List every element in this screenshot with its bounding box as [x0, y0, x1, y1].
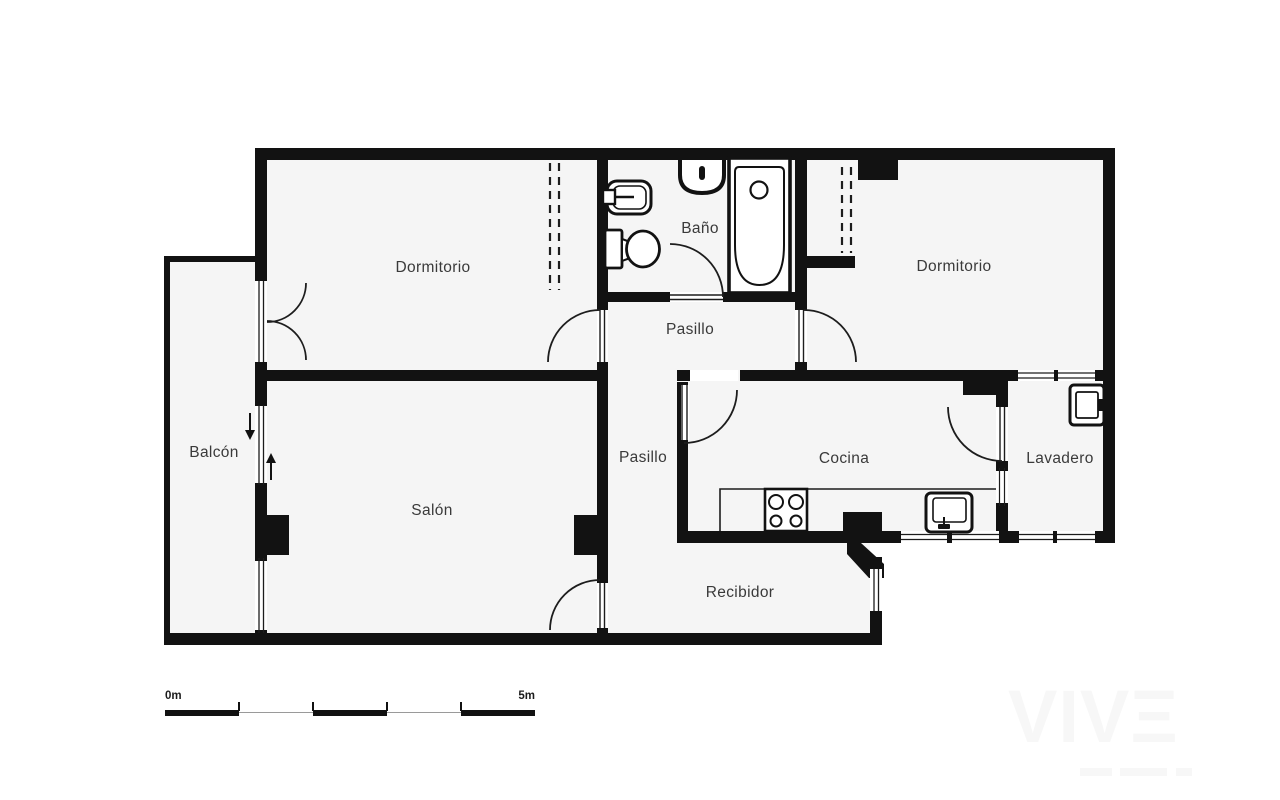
bathroom-sink-icon [603, 181, 651, 214]
room-label-dormitorio-1: Dormitorio [396, 259, 471, 277]
scale-segment [165, 710, 239, 716]
scale-end-label: 5m [518, 690, 535, 702]
scale-segment [313, 710, 387, 716]
room-label-pasillo-1: Pasillo [666, 321, 714, 339]
watermark-tagline-block [1080, 768, 1112, 776]
salon-window [255, 558, 267, 633]
watermark-logo: VIVΞ [1008, 680, 1218, 754]
entrance-door [870, 565, 882, 615]
scale-segment [387, 712, 461, 713]
sliding-door-balcony [255, 403, 267, 486]
watermark: VIVΞ [1008, 680, 1218, 780]
scale-tick [238, 702, 240, 711]
bidet-icon [680, 160, 724, 193]
room-label-balcon: Balcón [189, 444, 239, 462]
scale-segment [239, 712, 313, 713]
watermark-tagline-block [1176, 768, 1192, 776]
stove-icon [765, 489, 807, 531]
washing-machine-icon [1070, 385, 1105, 425]
floor-plan: Dormitorio Baño Dormitorio Pasillo Balcó… [0, 0, 1280, 800]
room-label-dormitorio-2: Dormitorio [917, 258, 992, 276]
scale-segment [461, 710, 535, 716]
room-label-salon: Salón [411, 502, 452, 520]
scale-tick [460, 702, 462, 711]
room-label-lavadero: Lavadero [1026, 450, 1093, 468]
lavadero-panel-window [996, 468, 1008, 506]
toilet-icon [605, 230, 660, 268]
lavadero-top-windows [1015, 370, 1098, 381]
watermark-tagline-block [1120, 768, 1167, 776]
room-label-pasillo-2: Pasillo [619, 449, 667, 467]
lavadero-bottom-windows [1016, 531, 1098, 543]
room-label-recibidor: Recibidor [706, 584, 775, 602]
scale-tick [312, 702, 314, 711]
scale-start-label: 0m [165, 690, 182, 702]
room-label-cocina: Cocina [819, 450, 869, 468]
room-label-bano: Baño [681, 220, 719, 238]
scale-bar: 0m 5m [165, 690, 535, 722]
bathtub-icon [729, 158, 790, 293]
kitchen-sink-icon [926, 493, 972, 532]
scale-tick [386, 702, 388, 711]
